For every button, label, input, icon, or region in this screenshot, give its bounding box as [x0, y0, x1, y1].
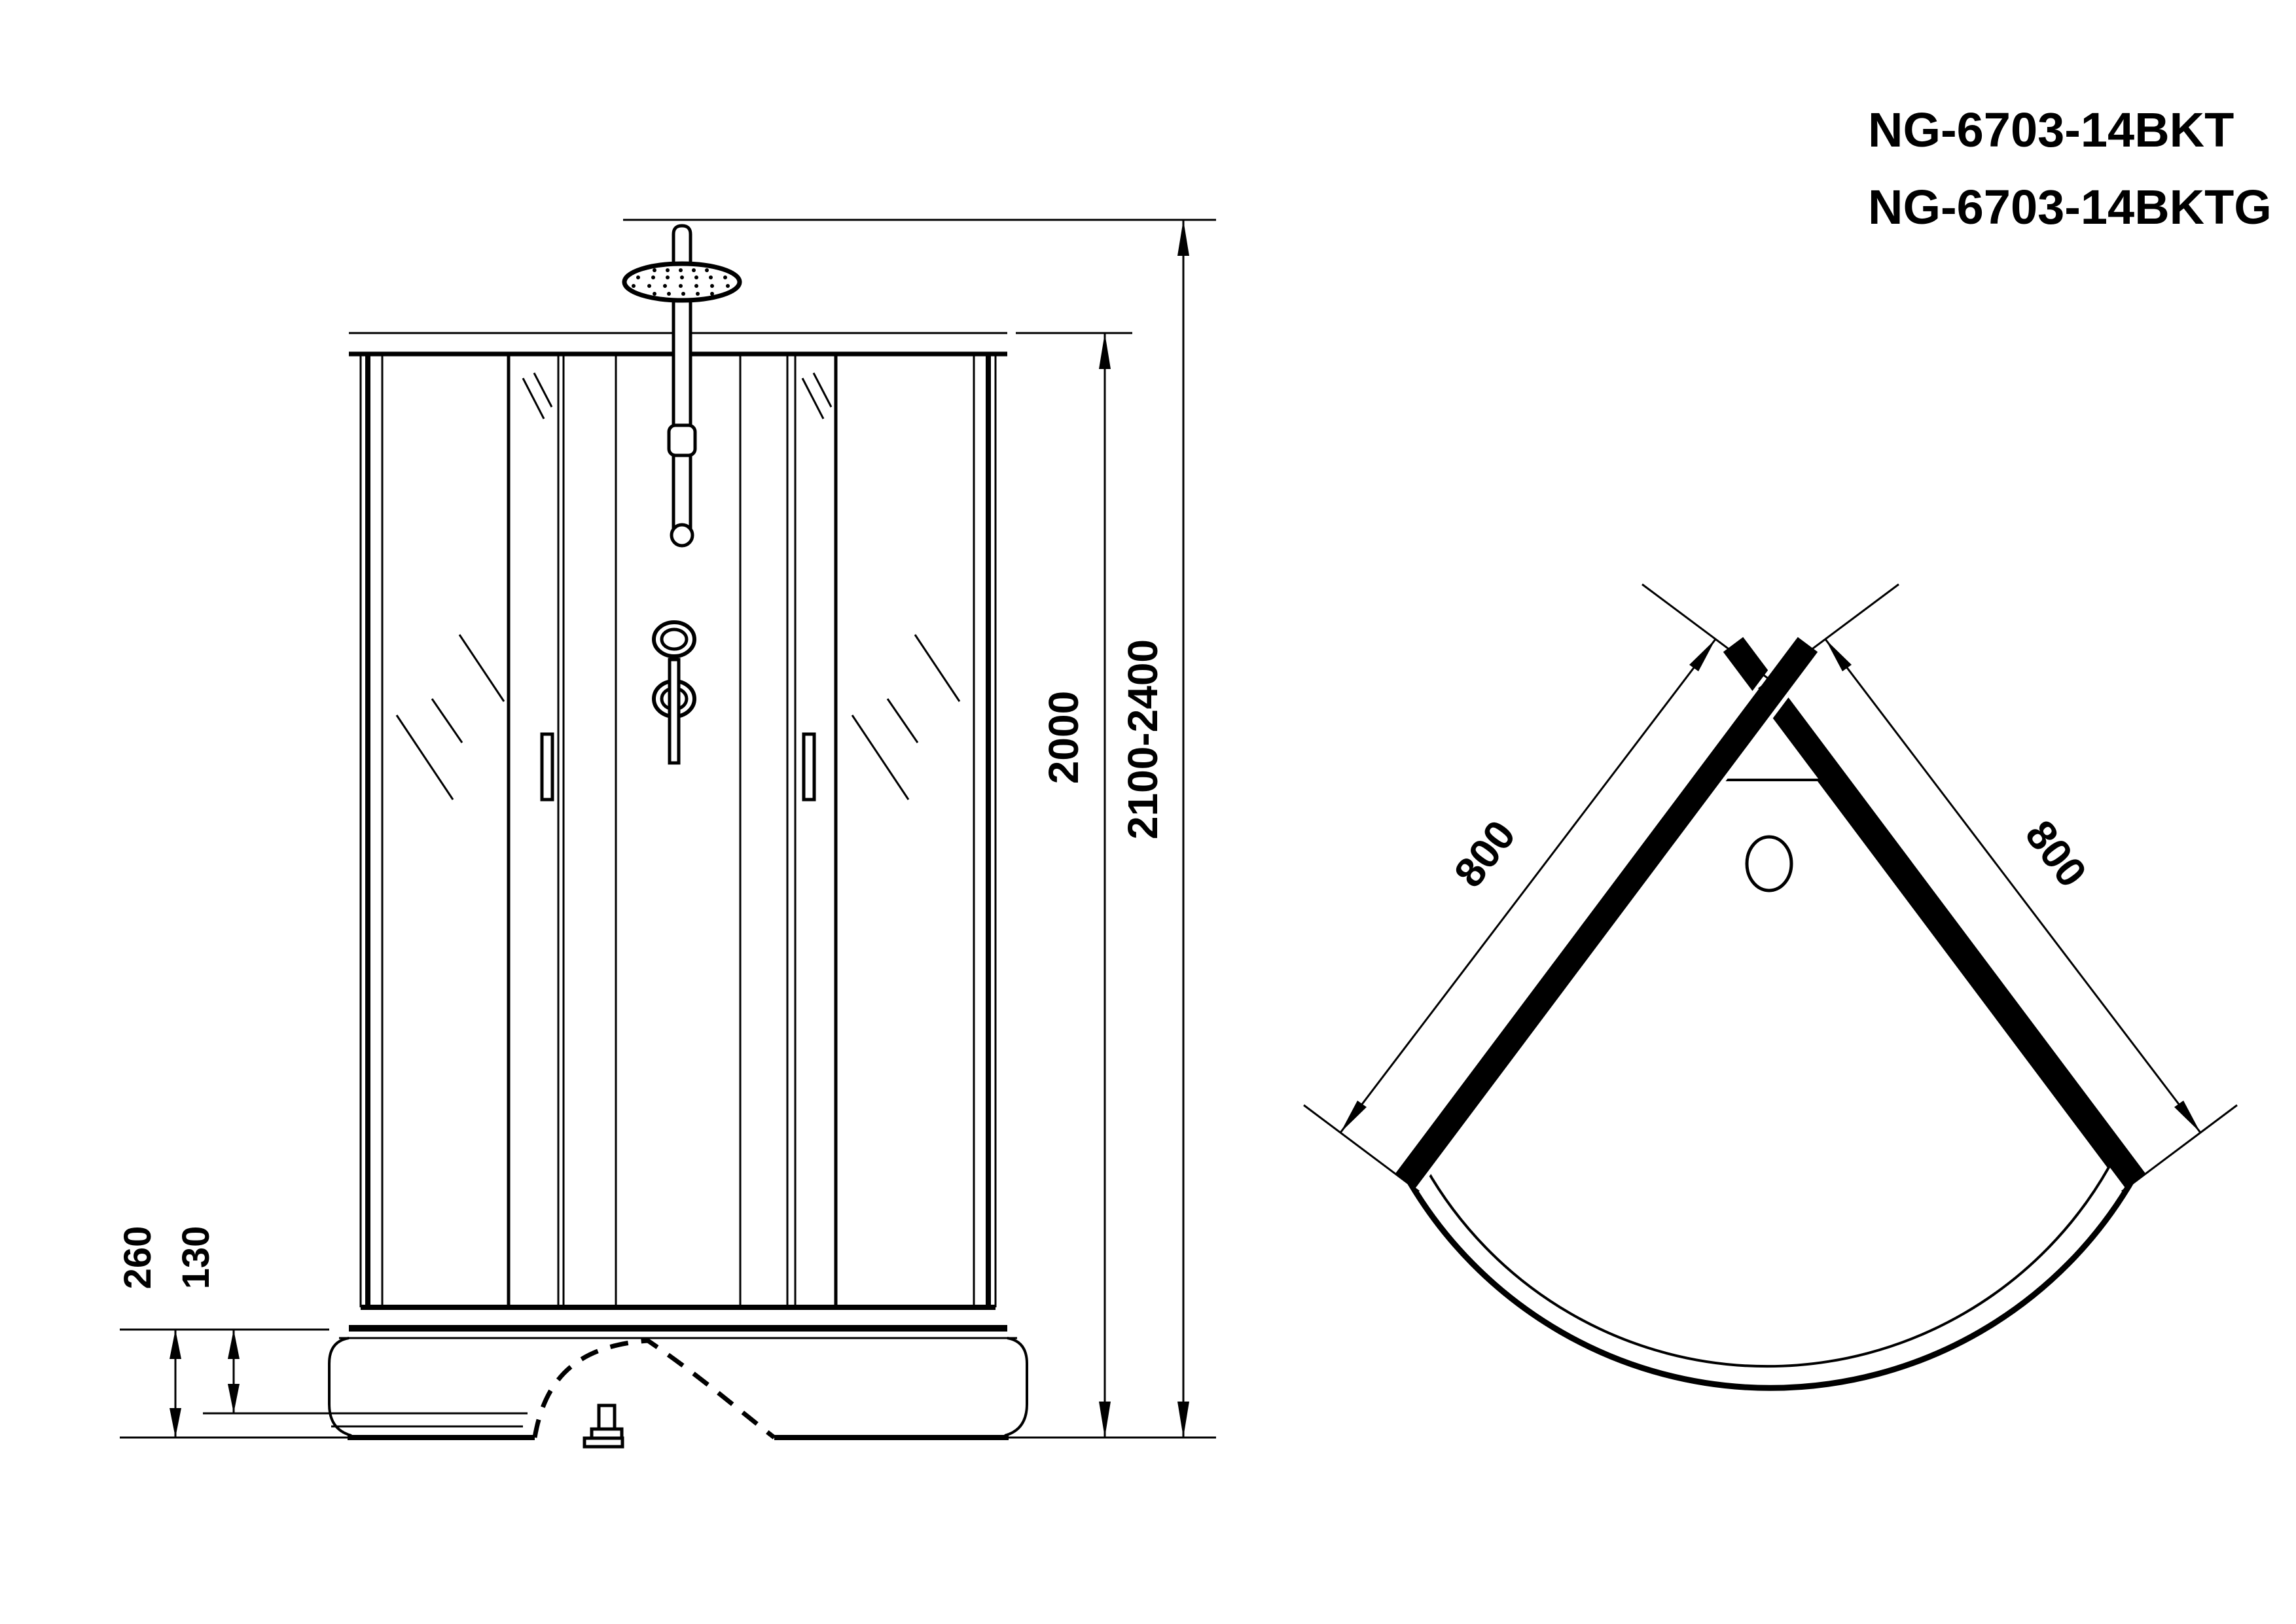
- top-plan-view: 800 800: [1304, 584, 2237, 1388]
- door-handle-right: [804, 734, 814, 800]
- dim-label-base-step-height: 130: [175, 1226, 217, 1290]
- dimension-cabin-height: 2000: [1040, 333, 1111, 1438]
- shower-tray: [203, 1338, 1027, 1447]
- tray-apron-dashed-cutout: [535, 1341, 774, 1438]
- dimension-side-b: 800: [1825, 639, 2200, 1133]
- dim-label-side-b: 800: [2017, 811, 2096, 896]
- hand-shower-outlet: [672, 525, 692, 546]
- cabin-bottom-rails: [349, 1307, 1007, 1328]
- tray-right-profile: [1005, 1338, 1027, 1436]
- tray-rim-outline: [1426, 780, 2109, 1366]
- wall-panel-left: [1405, 644, 1808, 1181]
- product-model-labels: NG-6703-14BKT NG-6703-14BKTG: [1868, 103, 2272, 234]
- wall-panel-right: [1733, 644, 2136, 1181]
- door-handle-left: [542, 734, 552, 800]
- dim-label-cabin-height: 2000: [1040, 691, 1087, 784]
- diverter-lever: [670, 660, 679, 763]
- tray-left-profile: [329, 1338, 351, 1436]
- hand-shower-slider: [669, 425, 695, 455]
- shower-cabin-technical-drawing: NG-6703-14BKT NG-6703-14BKTG: [0, 0, 2296, 1624]
- control-valve-upper: [662, 629, 687, 649]
- model-label-secondary: NG-6703-14BKTG: [1868, 180, 2272, 234]
- drain-trap: [584, 1405, 622, 1447]
- front-elevation-view: 260 130 2000 2100-2400: [117, 220, 1216, 1447]
- model-label-primary: NG-6703-14BKT: [1868, 103, 2234, 157]
- drawing-page: NG-6703-14BKT NG-6703-14BKTG: [0, 0, 2296, 1624]
- shower-mixer-controls: [654, 622, 694, 763]
- curved-front-edge: [1407, 1178, 2134, 1388]
- dimension-side-a: 800: [1340, 639, 1715, 1133]
- shower-column: [624, 226, 740, 546]
- dim-label-side-a: 800: [1445, 811, 1525, 896]
- dim-label-total-height: 2100-2400: [1119, 639, 1166, 839]
- plan-drain-hole: [1747, 837, 1791, 891]
- dimension-base-heights: 260 130: [117, 1226, 329, 1438]
- dim-label-base-height: 260: [117, 1226, 159, 1290]
- dimension-total-height: 2100-2400: [1119, 220, 1189, 1438]
